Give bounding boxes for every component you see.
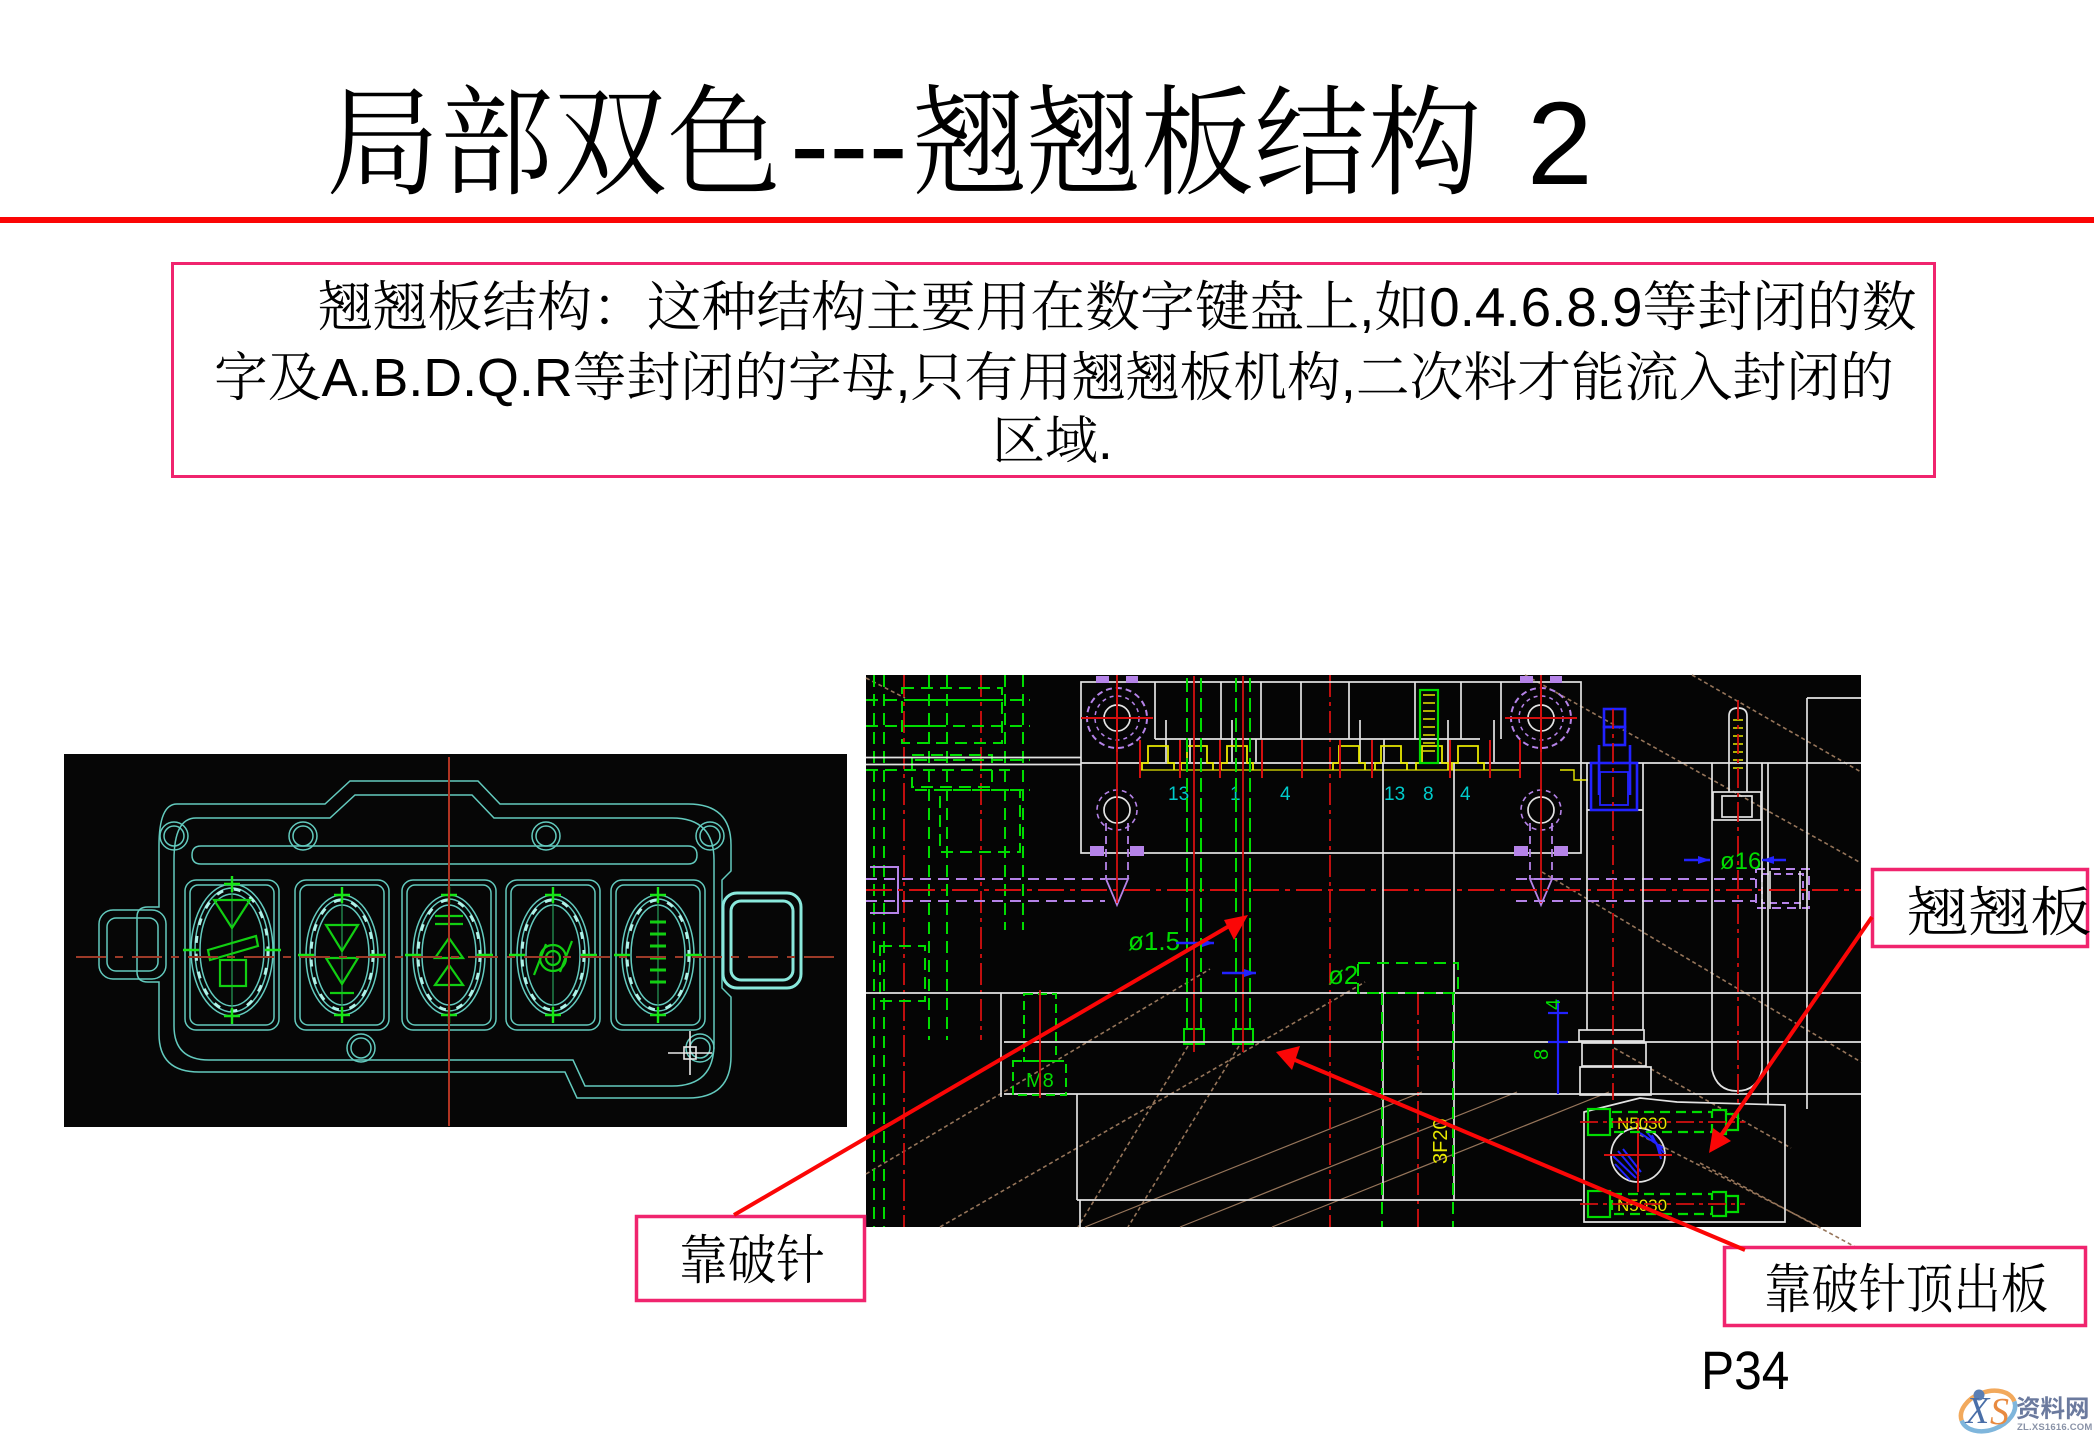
svg-text:4: 4 (1460, 784, 1471, 805)
svg-text:ZL.XS1616.COM: ZL.XS1616.COM (2017, 1422, 2092, 1433)
svg-text:13: 13 (1384, 784, 1405, 805)
svg-text:X: X (1964, 1390, 1991, 1432)
svg-text:ø1.5: ø1.5 (1128, 926, 1180, 956)
svg-text:8: 8 (1531, 1049, 1553, 1060)
svg-text:4: 4 (1543, 999, 1565, 1010)
svg-text:8: 8 (1423, 784, 1434, 805)
svg-text:N5030: N5030 (1617, 1114, 1667, 1133)
svg-text:13: 13 (1168, 784, 1189, 805)
svg-text:ø2: ø2 (1328, 960, 1358, 990)
svg-text:4: 4 (1280, 784, 1291, 805)
svg-text:S: S (1990, 1391, 2009, 1433)
svg-text:ø16: ø16 (1720, 848, 1761, 875)
